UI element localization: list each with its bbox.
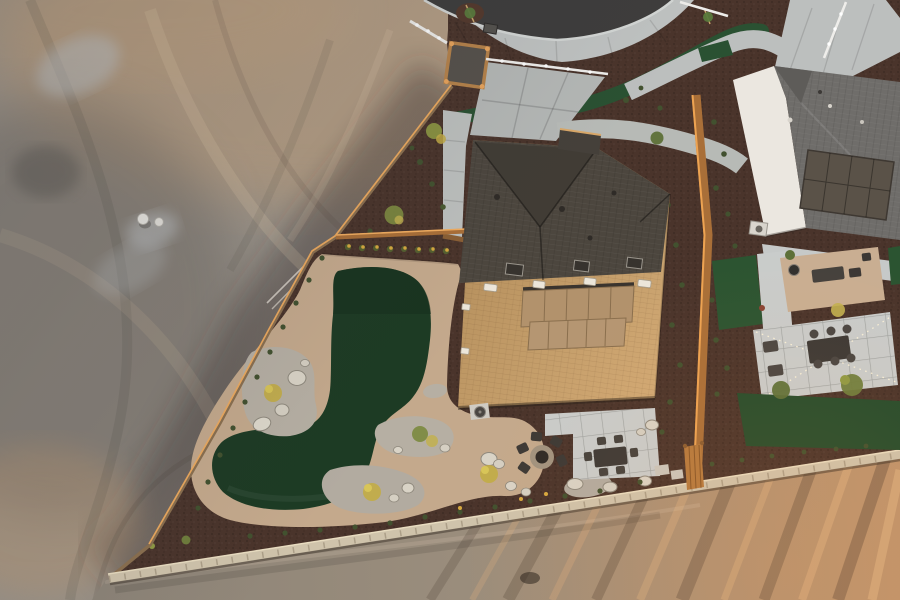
aerial-photo xyxy=(0,0,900,600)
aerial-photo-stage xyxy=(0,0,900,600)
sunset-warm-glow xyxy=(0,0,900,600)
